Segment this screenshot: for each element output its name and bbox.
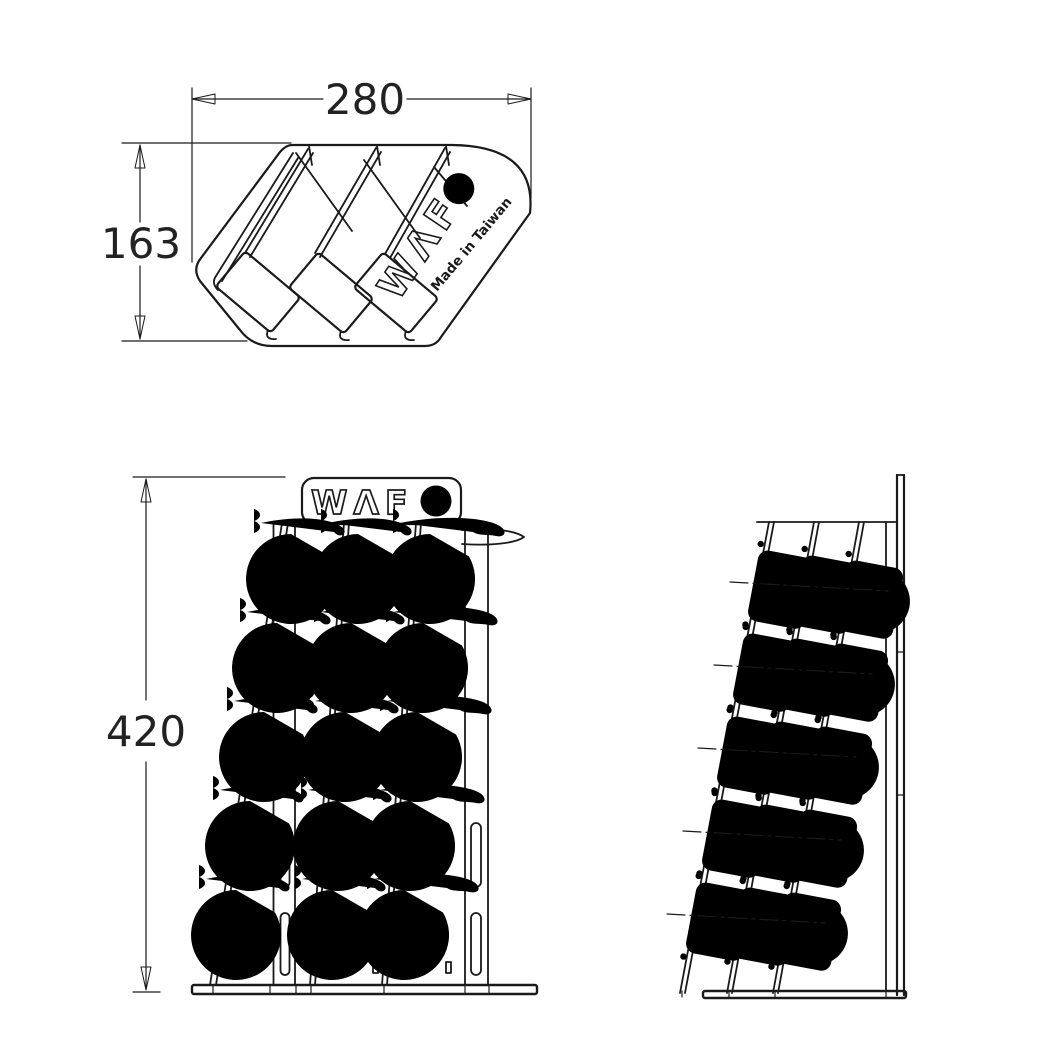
panel-slot (471, 823, 481, 887)
foot-slot (446, 962, 451, 973)
hook-grid-front (191, 509, 505, 980)
back-panel (886, 475, 904, 995)
base-plate-front (192, 985, 537, 994)
technical-drawing-canvas: WΛF Made in Taiwan 280 163 WΛF (0, 0, 1049, 1049)
drawing-svg: WΛF Made in Taiwan 280 163 WΛF (0, 0, 1049, 1049)
top-view-inner-rim (214, 153, 298, 290)
top-view: WΛF Made in Taiwan (196, 145, 530, 346)
dim-depth-label: 163 (101, 219, 181, 268)
base-plate-side (682, 991, 906, 998)
dim-width-label: 280 (325, 75, 405, 124)
side-view (667, 475, 918, 998)
dim-height-label: 420 (106, 707, 186, 756)
wafo-o-swirl-icon-front (421, 486, 452, 517)
front-view: WΛF (191, 478, 537, 994)
panel-slot (471, 913, 481, 975)
